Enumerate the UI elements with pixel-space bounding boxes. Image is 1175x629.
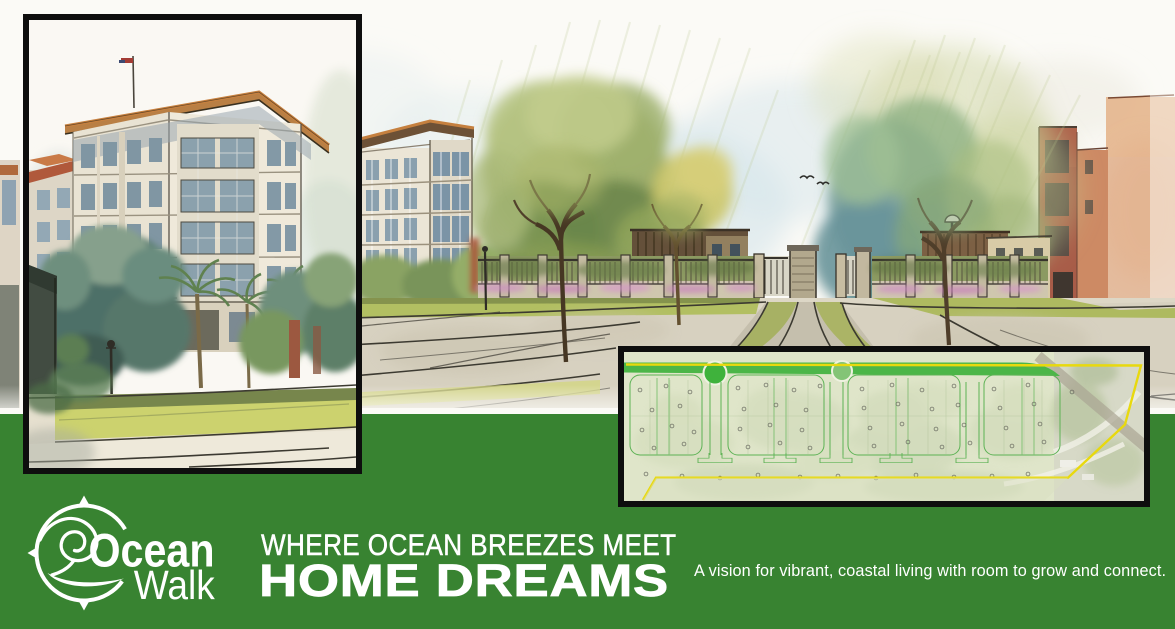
svg-text:Walk: Walk: [134, 562, 215, 608]
